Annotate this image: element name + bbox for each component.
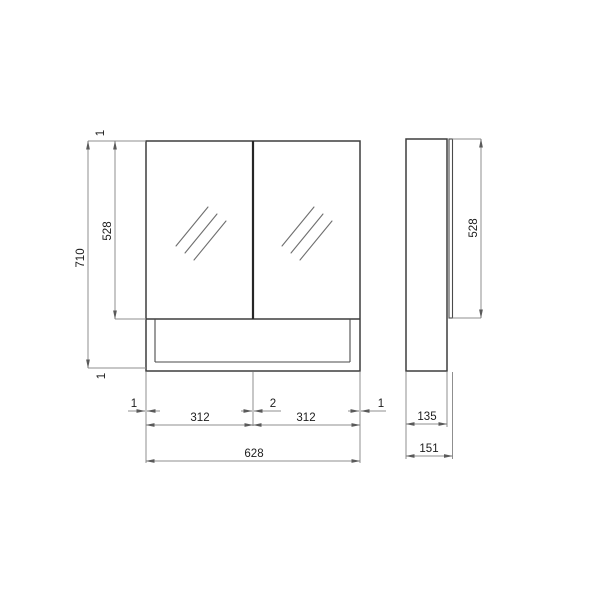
front-vertical-dimensions: 710 528 1 1 xyxy=(75,130,146,379)
technical-drawing: 710 528 1 1 1 2 1 312 312 xyxy=(0,0,600,600)
dim-gap-left-label: 1 xyxy=(131,398,137,410)
dim-door-width-left-label: 312 xyxy=(190,412,209,424)
front-horizontal-dimensions: 1 2 1 312 312 628 xyxy=(128,372,386,463)
dim-door-height-label: 528 xyxy=(102,221,114,240)
mirror-hatch-right xyxy=(282,207,332,260)
hatch-line xyxy=(282,207,314,246)
dim-gap-bottom-label: 1 xyxy=(96,373,108,379)
hatch-line xyxy=(185,214,217,253)
total-width-dim-row: 628 xyxy=(146,448,360,461)
dim-total-depth-label: 151 xyxy=(419,443,438,455)
dim-side-door-height-label: 528 xyxy=(468,218,480,237)
dim-gap-center-label: 2 xyxy=(270,398,276,410)
gap-dims-row: 1 2 1 xyxy=(128,398,386,411)
side-mirror-door-panel xyxy=(449,139,453,318)
mirror-hatch-left xyxy=(176,207,226,260)
hatch-line xyxy=(300,221,332,260)
shelf-niche xyxy=(155,319,350,362)
dim-gap-top-label: 1 xyxy=(95,130,107,136)
side-body-outline xyxy=(406,139,447,371)
side-view xyxy=(406,139,453,371)
hatch-line xyxy=(176,207,208,246)
hatch-line xyxy=(291,214,323,253)
side-dimensions: 528 135 151 xyxy=(406,139,481,459)
dim-total-height-label: 710 xyxy=(75,248,87,267)
front-view xyxy=(146,141,360,371)
dim-total-width-label: 628 xyxy=(244,448,263,460)
dim-gap-right-label: 1 xyxy=(378,398,384,410)
dim-door-width-right-label: 312 xyxy=(296,412,315,424)
hatch-line xyxy=(194,221,226,260)
dim-body-depth-label: 135 xyxy=(417,411,436,423)
